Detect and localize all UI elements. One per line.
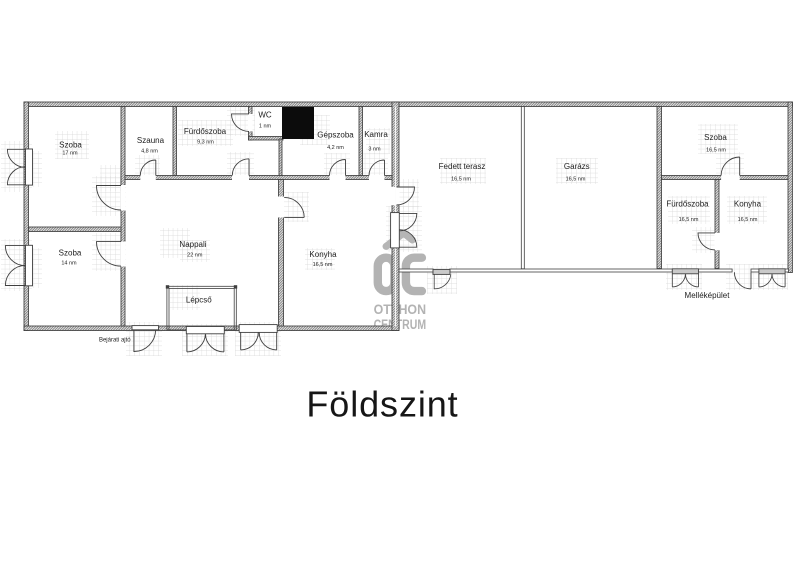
svg-text:Szoba: Szoba: [704, 133, 727, 142]
svg-text:Szoba: Szoba: [59, 249, 82, 258]
svg-text:WC: WC: [258, 111, 272, 120]
svg-text:Garázs: Garázs: [564, 162, 590, 171]
svg-text:9,3 nm: 9,3 nm: [197, 140, 214, 146]
svg-text:OTTHON: OTTHON: [374, 302, 427, 317]
svg-text:Nappali: Nappali: [179, 240, 206, 249]
svg-text:1 nm: 1 nm: [259, 124, 272, 130]
svg-text:16,5 nm: 16,5 nm: [738, 217, 758, 223]
svg-text:22 nm: 22 nm: [187, 253, 203, 259]
svg-text:16,5 nm: 16,5 nm: [679, 217, 699, 223]
svg-text:3 nm: 3 nm: [368, 147, 381, 153]
svg-text:Szoba: Szoba: [59, 141, 82, 150]
svg-text:4,2 nm: 4,2 nm: [327, 145, 344, 151]
svg-text:Fedett terasz: Fedett terasz: [439, 162, 486, 171]
svg-text:Szauna: Szauna: [137, 136, 165, 145]
svg-text:Konyha: Konyha: [309, 250, 337, 259]
svg-text:Konyha: Konyha: [734, 200, 762, 209]
svg-text:Fürdőszoba: Fürdőszoba: [184, 127, 227, 136]
svg-text:Gépszoba: Gépszoba: [317, 131, 354, 140]
svg-text:16,5 nm: 16,5 nm: [706, 148, 726, 154]
svg-text:16,5 nm: 16,5 nm: [313, 262, 333, 268]
svg-text:14 nm: 14 nm: [61, 261, 77, 267]
svg-text:Kamra: Kamra: [364, 130, 388, 139]
svg-text:Fürdőszoba: Fürdőszoba: [666, 200, 709, 209]
svg-text:17 nm: 17 nm: [62, 151, 78, 157]
svg-text:Földszint: Földszint: [306, 384, 458, 425]
svg-text:4,8 nm: 4,8 nm: [141, 149, 158, 155]
svg-text:Melléképület: Melléképület: [685, 291, 731, 300]
svg-text:Bejárati ajtó: Bejárati ajtó: [99, 338, 131, 344]
svg-text:Lépcső: Lépcső: [186, 296, 212, 305]
svg-text:16,5 nm: 16,5 nm: [566, 177, 586, 183]
svg-text:16,5 nm: 16,5 nm: [451, 177, 471, 183]
